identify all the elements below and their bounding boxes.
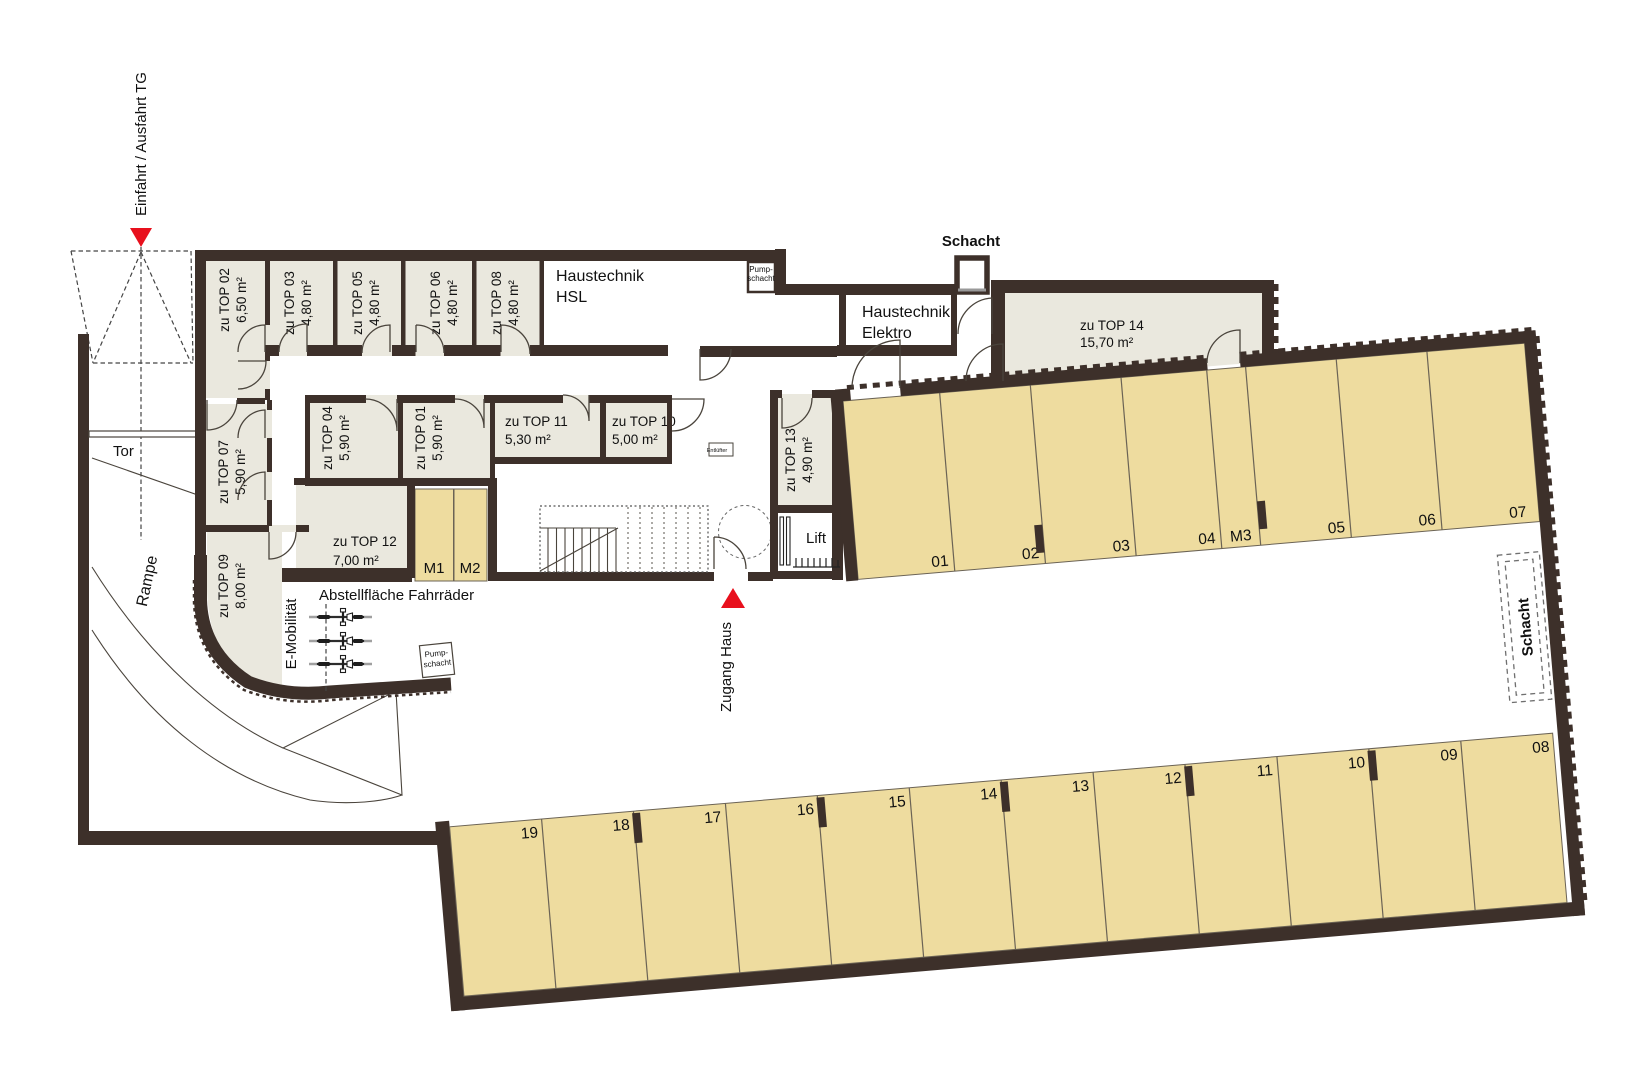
- svg-text:01: 01: [931, 553, 950, 571]
- svg-text:zu TOP 09: zu TOP 09: [216, 554, 231, 618]
- svg-text:14: 14: [979, 785, 998, 803]
- svg-text:Zugang Haus: Zugang Haus: [718, 622, 735, 712]
- svg-text:zu TOP 11: zu TOP 11: [505, 414, 568, 429]
- svg-text:18: 18: [612, 817, 631, 835]
- svg-text:05: 05: [1327, 519, 1346, 537]
- svg-text:Elektro: Elektro: [862, 325, 912, 342]
- svg-text:11: 11: [1256, 762, 1273, 780]
- svg-text:09: 09: [1440, 746, 1459, 764]
- svg-text:15: 15: [888, 793, 907, 811]
- svg-text:07: 07: [1509, 504, 1528, 522]
- svg-text:Tor: Tor: [113, 443, 134, 460]
- svg-text:HSL: HSL: [556, 289, 587, 306]
- svg-text:5,30 m²: 5,30 m²: [505, 432, 551, 447]
- svg-text:10: 10: [1347, 754, 1366, 772]
- svg-text:zu TOP 03: zu TOP 03: [282, 271, 297, 335]
- svg-text:5,90 m²: 5,90 m²: [430, 415, 445, 461]
- svg-text:zu TOP 12: zu TOP 12: [333, 534, 397, 549]
- svg-text:4,80 m²: 4,80 m²: [299, 280, 314, 326]
- svg-text:08: 08: [1532, 739, 1551, 757]
- svg-text:03: 03: [1112, 537, 1131, 555]
- svg-text:Pump-: Pump-: [749, 265, 773, 274]
- svg-text:zu TOP 14: zu TOP 14: [1080, 318, 1144, 333]
- svg-text:zu TOP 13: zu TOP 13: [783, 428, 798, 492]
- svg-text:4,90 m²: 4,90 m²: [800, 437, 815, 483]
- svg-text:Lift: Lift: [806, 530, 827, 547]
- svg-text:4,80 m²: 4,80 m²: [367, 280, 382, 326]
- svg-text:4,80 m²: 4,80 m²: [506, 280, 521, 326]
- svg-text:zu TOP 02: zu TOP 02: [217, 268, 232, 332]
- svg-text:Abstellfläche Fahrräder: Abstellfläche Fahrräder: [319, 587, 474, 604]
- svg-text:zu TOP 07: zu TOP 07: [216, 440, 231, 504]
- svg-text:4,80 m²: 4,80 m²: [445, 280, 460, 326]
- svg-text:Haustechnik: Haustechnik: [862, 304, 951, 321]
- svg-text:M1: M1: [424, 560, 445, 577]
- svg-text:Entlüfter: Entlüfter: [707, 448, 728, 454]
- svg-text:zu TOP 04: zu TOP 04: [320, 406, 335, 470]
- svg-text:17: 17: [703, 809, 722, 827]
- svg-text:Einfahrt / Ausfahrt TG: Einfahrt / Ausfahrt TG: [133, 72, 150, 216]
- svg-text:zu TOP 01: zu TOP 01: [413, 406, 428, 470]
- svg-text:schacht: schacht: [747, 274, 775, 283]
- svg-text:19: 19: [520, 824, 539, 842]
- svg-text:5,90 m²: 5,90 m²: [337, 415, 352, 461]
- svg-text:7,00 m²: 7,00 m²: [333, 553, 379, 568]
- svg-text:8,00 m²: 8,00 m²: [233, 563, 248, 609]
- svg-text:zu TOP 06: zu TOP 06: [428, 271, 443, 335]
- svg-text:04: 04: [1198, 530, 1217, 548]
- svg-text:Haustechnik: Haustechnik: [556, 268, 645, 285]
- svg-text:E-Mobilität: E-Mobilität: [283, 598, 300, 670]
- svg-text:zu TOP 10: zu TOP 10: [612, 414, 676, 429]
- svg-text:5,00 m²: 5,00 m²: [612, 432, 658, 447]
- svg-text:13: 13: [1071, 778, 1090, 796]
- svg-text:06: 06: [1418, 511, 1437, 529]
- svg-text:M3: M3: [1229, 527, 1252, 546]
- svg-text:Schacht: Schacht: [942, 233, 1000, 250]
- svg-text:15,70 m²: 15,70 m²: [1080, 335, 1134, 350]
- svg-text:zu TOP 05: zu TOP 05: [350, 271, 365, 335]
- svg-text:6,50 m²: 6,50 m²: [234, 277, 249, 323]
- svg-text:12: 12: [1164, 770, 1183, 788]
- svg-text:M2: M2: [460, 560, 481, 577]
- svg-text:16: 16: [796, 801, 815, 819]
